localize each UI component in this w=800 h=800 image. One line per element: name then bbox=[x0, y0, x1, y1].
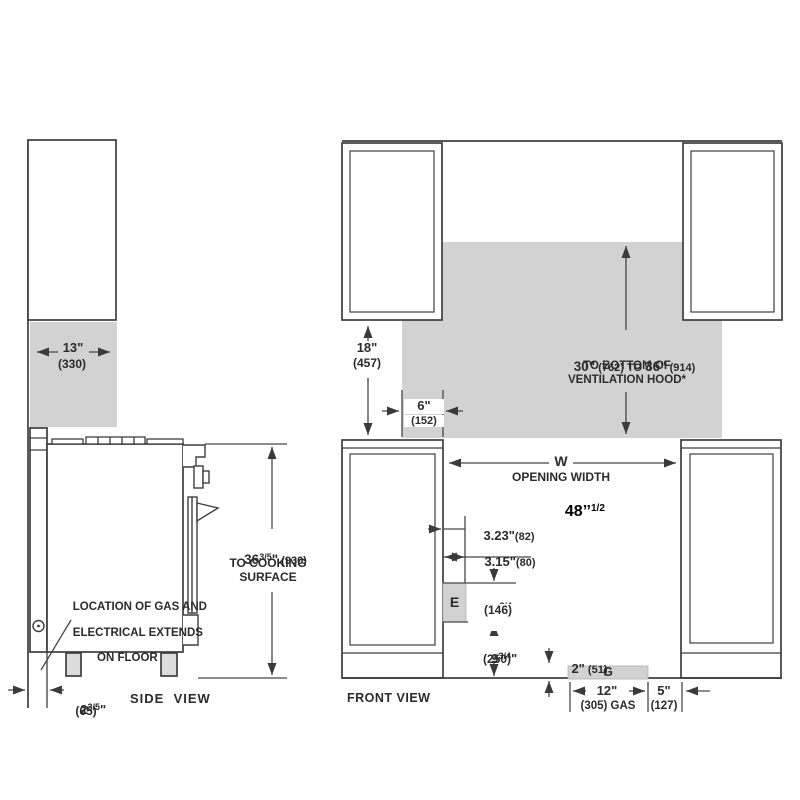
gas-location-note: LOCATION OF GAS AND ELECTRICAL EXTENDS O… bbox=[60, 588, 182, 678]
upper-cabinet-dim-mm: (457) bbox=[337, 357, 397, 370]
cooking-surface-dim-line2: TO COOKING bbox=[218, 557, 318, 570]
depth-dim-label: 13" bbox=[43, 341, 103, 356]
diagram-canvas bbox=[0, 0, 800, 800]
oven-door-handle bbox=[183, 497, 218, 645]
upper-cabinet-left bbox=[342, 143, 442, 320]
cooking-surface-dim-line3: SURFACE bbox=[218, 571, 318, 584]
hood-gray-region bbox=[402, 242, 722, 438]
cooktop-burners bbox=[52, 437, 183, 444]
electrical-width-dim: 3.15"(80) bbox=[470, 540, 535, 584]
side-wall-gray-region bbox=[30, 322, 117, 427]
hood-side-dim-mm: (152) bbox=[404, 415, 444, 427]
gas-right-dim-mm: (127) bbox=[644, 700, 684, 713]
electrical-height-dim-mm: (146) bbox=[468, 604, 528, 617]
range-back-panel bbox=[30, 428, 47, 652]
hood-side-dim: 6" bbox=[404, 399, 444, 414]
wall-gap-dim-mm: (65) bbox=[56, 705, 116, 718]
side-view-label: SIDE VIEW bbox=[130, 692, 211, 707]
base-cabinet-left bbox=[342, 440, 443, 678]
front-view-label: FRONT VIEW bbox=[347, 691, 430, 705]
opening-width-symbol: W bbox=[541, 454, 581, 470]
electrical-block-label: E bbox=[443, 583, 466, 622]
gas-right-dim: 5" bbox=[649, 684, 679, 699]
depth-dim-mm: (330) bbox=[42, 358, 102, 371]
gas-block-label: G bbox=[568, 666, 648, 679]
opening-width-value: 48’’1/2 bbox=[531, 485, 621, 539]
gas-width-dim-mm: (305) GAS bbox=[568, 700, 648, 713]
gas-width-dim: 12" bbox=[577, 684, 637, 699]
base-cabinet-right bbox=[681, 440, 781, 678]
installation-diagram: 13" (330) LOCATION OF GAS AND ELECTRICAL… bbox=[0, 0, 800, 800]
hood-height-dim-line3: VENTILATION HOOD* bbox=[537, 374, 717, 387]
electrical-floor-dim-mm: (250) bbox=[467, 653, 527, 666]
side-upper-cabinet bbox=[28, 140, 116, 320]
opening-width-label: OPENING WIDTH bbox=[481, 471, 641, 484]
hood-height-dim-line2: TO BOTTOM OF bbox=[537, 360, 717, 373]
control-panel-profile bbox=[183, 445, 209, 488]
upper-cabinet-right bbox=[683, 143, 782, 320]
upper-cabinet-dim: 18" bbox=[337, 341, 397, 356]
